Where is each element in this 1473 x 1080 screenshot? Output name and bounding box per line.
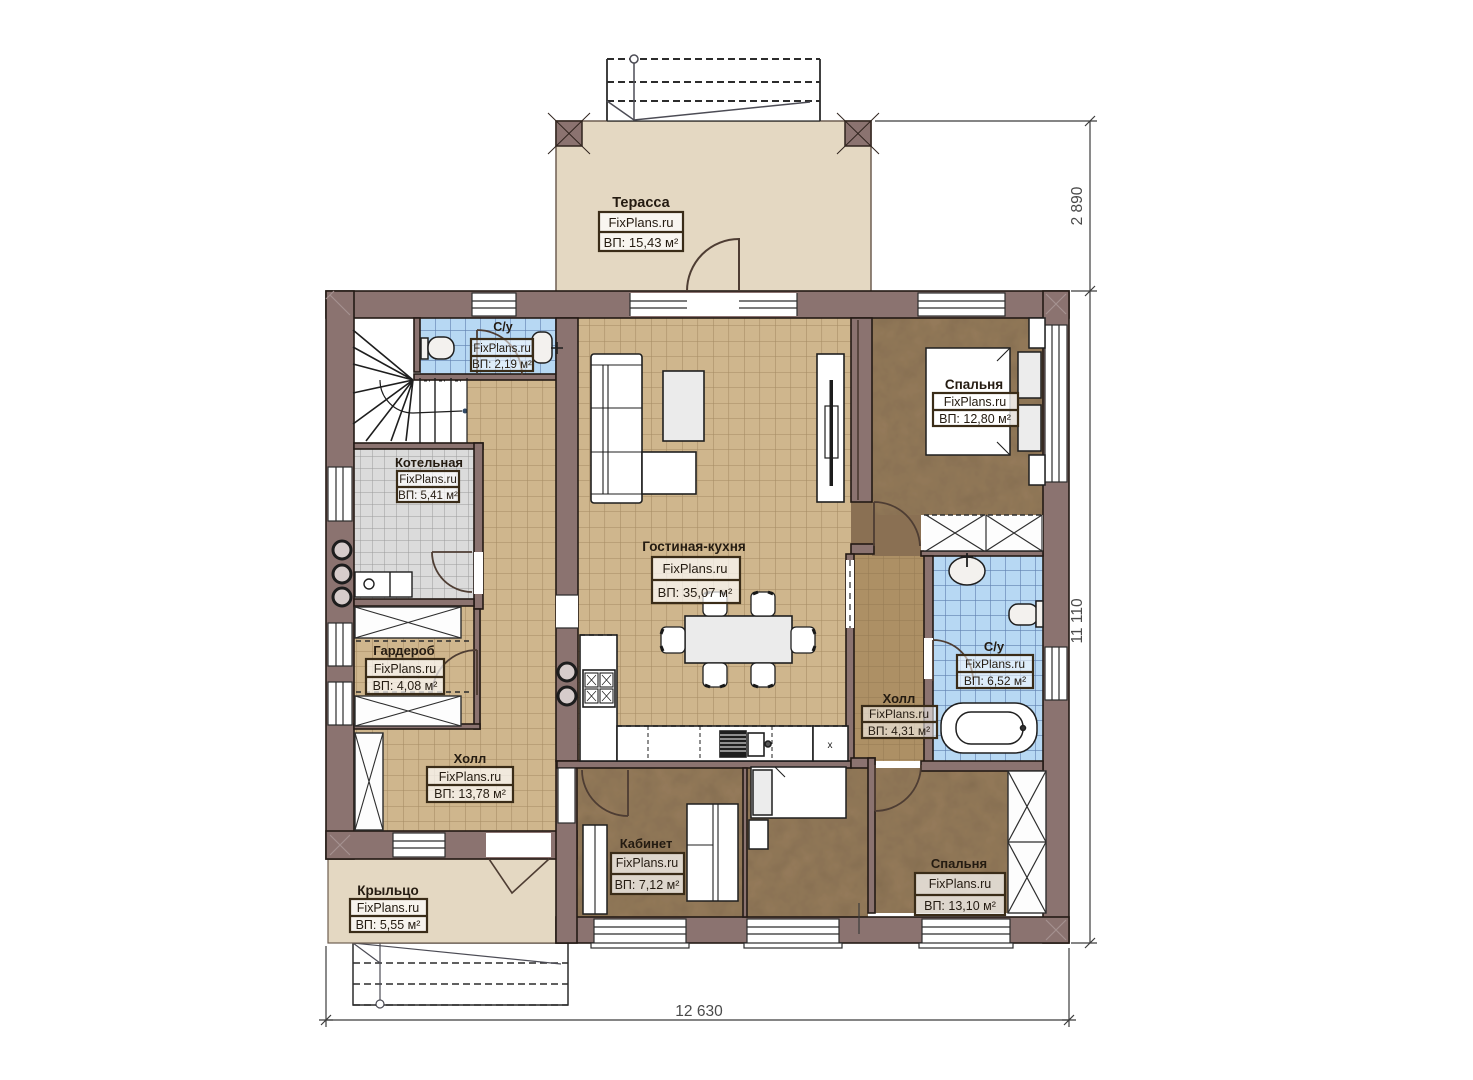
svg-text:ВП: 13,10 м²: ВП: 13,10 м² (924, 899, 996, 913)
svg-text:FixPlans.ru: FixPlans.ru (357, 901, 420, 915)
svg-text:Терасса: Терасса (612, 195, 670, 211)
svg-text:Крыльцо: Крыльцо (357, 883, 418, 898)
svg-text:ВП: 15,43 м²: ВП: 15,43 м² (604, 235, 679, 250)
svg-text:FixPlans.ru: FixPlans.ru (869, 707, 929, 721)
svg-text:FixPlans.ru: FixPlans.ru (616, 856, 679, 870)
svg-text:С/у: С/у (493, 320, 513, 334)
svg-text:Спальня: Спальня (945, 377, 1003, 392)
svg-text:ВП: 5,41 м²: ВП: 5,41 м² (398, 490, 458, 502)
svg-text:FixPlans.ru: FixPlans.ru (399, 474, 457, 486)
svg-text:2 890: 2 890 (1069, 186, 1086, 225)
svg-text:ВП: 4,08 м²: ВП: 4,08 м² (373, 679, 438, 693)
svg-text:FixPlans.ru: FixPlans.ru (374, 662, 437, 676)
svg-text:FixPlans.ru: FixPlans.ru (965, 657, 1025, 671)
svg-text:ВП: 6,52 м²: ВП: 6,52 м² (964, 674, 1026, 688)
svg-text:FixPlans.ru: FixPlans.ru (662, 561, 727, 576)
svg-text:11 110: 11 110 (1069, 598, 1086, 643)
svg-text:FixPlans.ru: FixPlans.ru (944, 395, 1007, 409)
svg-text:ВП: 13,78 м²: ВП: 13,78 м² (434, 787, 506, 801)
svg-text:FixPlans.ru: FixPlans.ru (439, 770, 502, 784)
svg-text:Кабинет: Кабинет (620, 836, 673, 851)
svg-text:ВП: 5,55 м²: ВП: 5,55 м² (356, 918, 421, 932)
svg-text:ВП: 4,31 м²: ВП: 4,31 м² (868, 724, 930, 738)
svg-text:ВП: 35,07 м²: ВП: 35,07 м² (658, 585, 733, 600)
svg-text:FixPlans.ru: FixPlans.ru (929, 877, 992, 891)
svg-text:ВП: 12,80 м²: ВП: 12,80 м² (939, 412, 1011, 426)
svg-text:FixPlans.ru: FixPlans.ru (608, 215, 673, 230)
svg-text:ВП: 7,12 м²: ВП: 7,12 м² (615, 878, 680, 892)
svg-text:Гостиная-кухня: Гостиная-кухня (642, 539, 745, 554)
svg-text:С/у: С/у (984, 639, 1005, 654)
svg-text:Котельная: Котельная (395, 455, 463, 470)
svg-text:Холл: Холл (883, 691, 916, 706)
svg-text:x: x (828, 740, 833, 751)
svg-text:12 630: 12 630 (675, 1003, 723, 1020)
svg-text:ВП: 2,19 м²: ВП: 2,19 м² (472, 359, 532, 371)
svg-text:FixPlans.ru: FixPlans.ru (473, 343, 531, 355)
svg-text:Спальня: Спальня (931, 856, 987, 871)
svg-text:Гардероб: Гардероб (373, 643, 434, 658)
svg-text:Холл: Холл (454, 751, 487, 766)
